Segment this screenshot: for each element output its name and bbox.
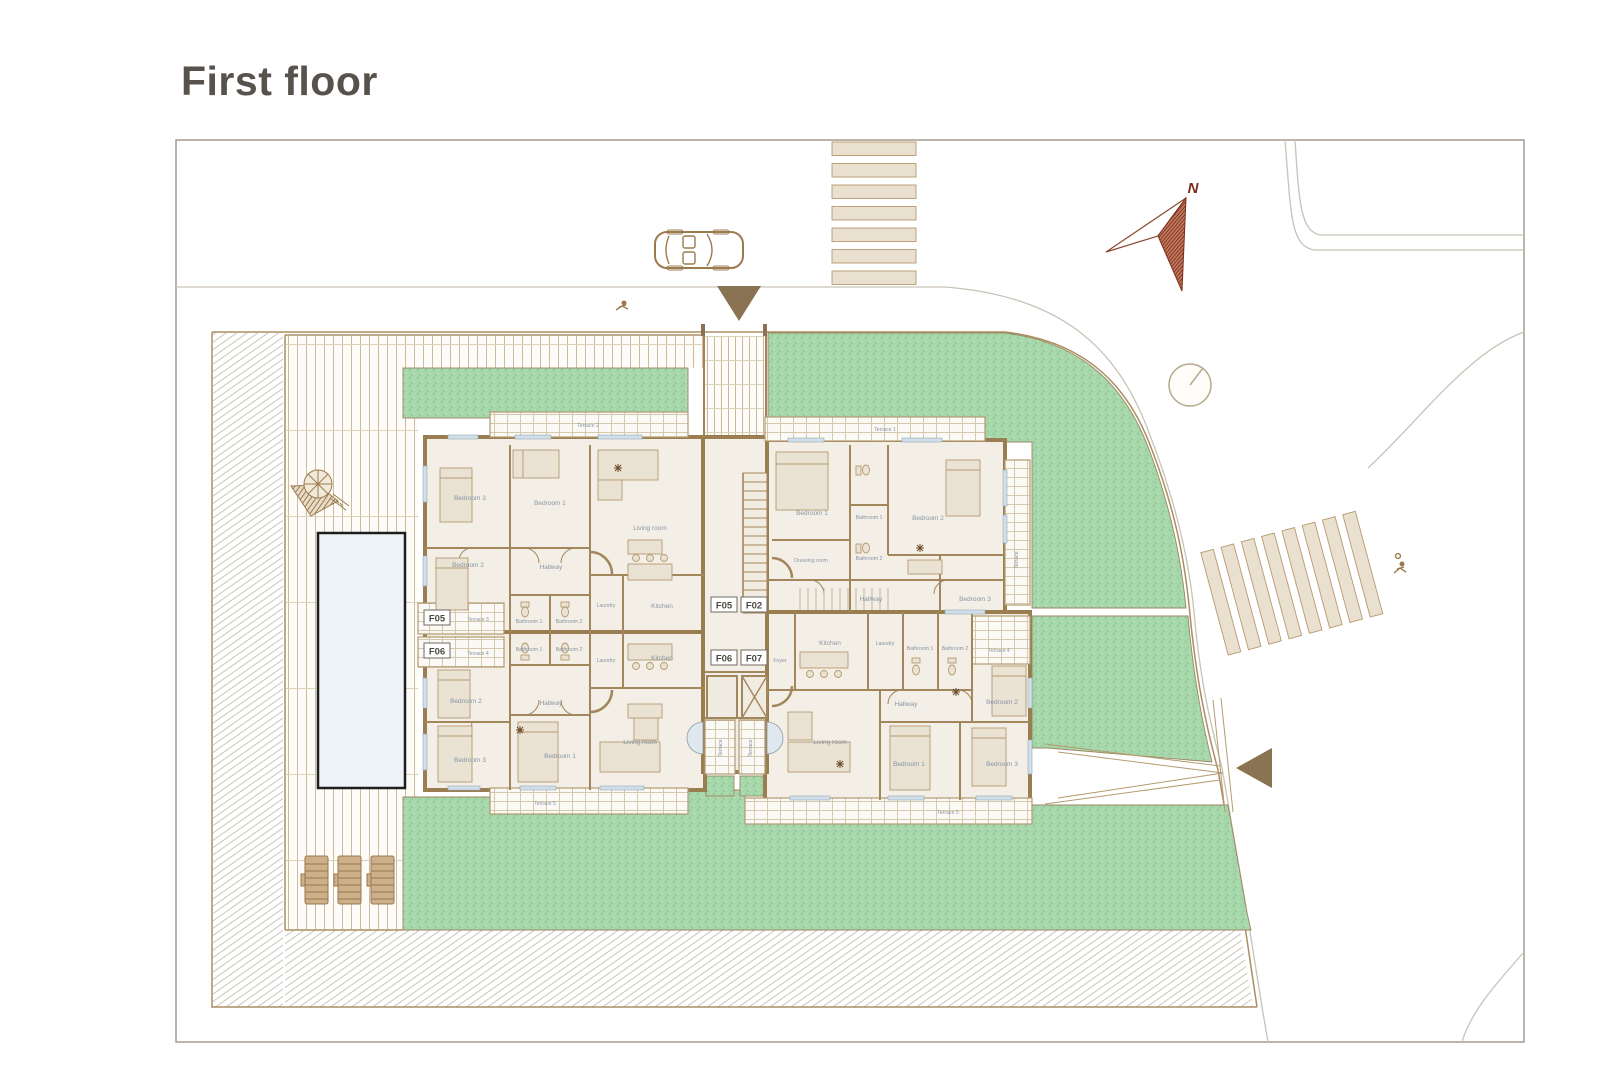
room-label: Terrace 2 <box>577 423 599 429</box>
utility-circle-icon <box>1169 364 1211 406</box>
badge-f06-center-label: F06 <box>716 654 732 665</box>
room-label: Bathroom 1 <box>856 515 883 521</box>
swimming-pool <box>318 533 405 788</box>
room-label: Terrace <box>718 739 724 756</box>
room-label: Bedroom 3 <box>454 495 486 502</box>
room-label: Laundry <box>597 603 616 609</box>
room-label: Bathroom 2 <box>556 619 583 625</box>
room-label: Kitchen <box>651 655 673 662</box>
room-label: Terrace 5 <box>534 801 556 807</box>
room-label: Hallway <box>895 701 919 708</box>
room-label: Living room <box>623 739 657 746</box>
room-label: Bedroom 3 <box>959 596 991 603</box>
room-label: Bathroom 2 <box>942 646 969 652</box>
room-label: Dressing room <box>794 558 828 564</box>
staircase <box>743 473 767 613</box>
room-label: Bedroom 1 <box>534 500 566 507</box>
room-label: Foyer <box>773 658 787 664</box>
badge-f02-center-label: F02 <box>746 601 762 612</box>
room-label: Bedroom 2 <box>450 698 482 705</box>
terrace-f07-bottom <box>745 798 1032 824</box>
crosswalk-top <box>832 142 916 285</box>
room-label: Bedroom 2 <box>912 515 944 522</box>
room-label: Bathroom 2 <box>856 556 883 562</box>
room-label: Laundry <box>597 658 616 664</box>
room-label: Terrace <box>748 739 754 756</box>
room-label: Hallway <box>540 700 564 707</box>
terrace-f06-bottom <box>490 788 688 814</box>
room-label: Bathroom 1 <box>516 619 543 625</box>
room-label: Terrace 4 <box>988 648 1010 654</box>
room-label: Bedroom 1 <box>893 761 925 768</box>
room-label: Bedroom 1 <box>796 510 828 517</box>
room-label: Kitchen <box>651 603 673 610</box>
sun-loungers <box>301 856 394 904</box>
room-label: Bedroom 3 <box>454 757 486 764</box>
room-label: Laundry <box>876 641 895 647</box>
site-plan: N <box>0 0 1614 1080</box>
elevator <box>707 676 767 718</box>
terrace-f02-side <box>1005 460 1030 605</box>
room-label: Terrace <box>1014 551 1020 568</box>
room-label: Bedroom 2 <box>986 699 1018 706</box>
room-label: Bedroom 3 <box>986 761 1018 768</box>
room-label: Bathroom 1 <box>516 647 543 653</box>
room-label: Living room <box>813 739 847 746</box>
room-label: Hallway <box>860 596 884 603</box>
room-label: Hallway <box>540 564 564 571</box>
room-label: Terrace 1 <box>874 427 896 433</box>
badge-f05-side-label: F05 <box>429 614 446 625</box>
room-label: Terrace 3 <box>467 617 489 623</box>
room-label: Bathroom 2 <box>556 647 583 653</box>
entrance-walkway <box>705 336 765 440</box>
room-label: Bedroom 1 <box>544 753 576 760</box>
badge-f05-center-label: F05 <box>716 601 733 612</box>
room-label: Living room <box>633 525 667 532</box>
terrace-f07-side <box>972 616 1030 664</box>
room-label: Terrace 4 <box>467 651 489 657</box>
room-label: Kitchen <box>819 640 841 647</box>
badge-f07-center-label: F07 <box>746 654 762 665</box>
room-label: Terrace 5 <box>937 810 959 816</box>
badge-f06-side-label: F06 <box>429 647 445 658</box>
room-label: Bathroom 1 <box>907 646 934 652</box>
room-label: Bedroom 2 <box>452 562 484 569</box>
north-label: N <box>1188 180 1200 197</box>
